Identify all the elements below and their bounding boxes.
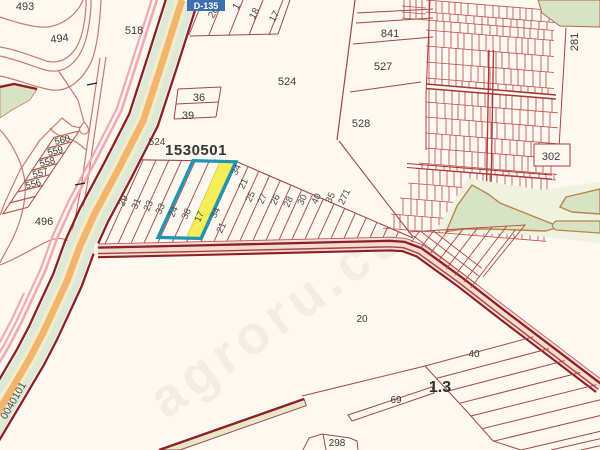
svg-text:302: 302 <box>542 151 560 163</box>
svg-text:528: 528 <box>352 118 370 130</box>
svg-text:493: 493 <box>16 1 34 13</box>
svg-text:20: 20 <box>356 314 368 325</box>
svg-text:524: 524 <box>278 76 296 88</box>
svg-text:298: 298 <box>329 438 346 449</box>
svg-text:40: 40 <box>468 349 480 360</box>
svg-text:1.3: 1.3 <box>429 379 451 396</box>
svg-text:69: 69 <box>390 395 402 406</box>
svg-text:1530501: 1530501 <box>165 142 227 159</box>
svg-text:527: 527 <box>374 61 392 73</box>
svg-text:524: 524 <box>149 137 166 148</box>
svg-text:39: 39 <box>182 110 194 122</box>
svg-text:D-135: D-135 <box>194 1 219 11</box>
svg-text:518: 518 <box>125 25 143 37</box>
svg-text:36: 36 <box>193 92 205 104</box>
svg-text:494: 494 <box>50 32 70 46</box>
svg-text:496: 496 <box>35 216 53 228</box>
svg-text:281: 281 <box>569 33 581 51</box>
svg-text:841: 841 <box>381 28 399 40</box>
